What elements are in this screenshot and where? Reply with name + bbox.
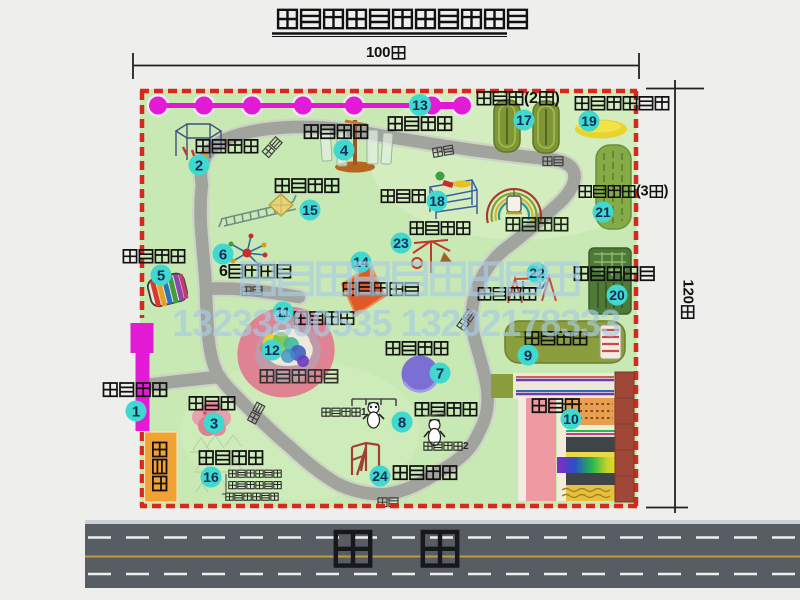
svg-text:13233800535 13202178333: 13233800535 13202178333 xyxy=(172,303,620,345)
svg-text:4: 4 xyxy=(340,142,349,159)
svg-text:15: 15 xyxy=(302,202,318,218)
svg-text:2: 2 xyxy=(195,157,203,174)
svg-text:8: 8 xyxy=(398,414,406,431)
svg-text:(3: (3 xyxy=(636,184,649,200)
svg-text:): ) xyxy=(555,90,560,107)
svg-text:): ) xyxy=(664,184,669,200)
svg-text:13: 13 xyxy=(412,97,428,113)
svg-text:5: 5 xyxy=(157,267,165,284)
svg-text:17: 17 xyxy=(516,112,532,128)
svg-text:1: 1 xyxy=(361,407,367,418)
svg-text:9: 9 xyxy=(524,347,532,364)
svg-text:19: 19 xyxy=(581,113,597,129)
svg-text:3: 3 xyxy=(210,415,218,432)
svg-text:10: 10 xyxy=(563,411,579,427)
svg-text:18: 18 xyxy=(429,193,445,209)
svg-text:20: 20 xyxy=(609,287,625,303)
svg-text:6: 6 xyxy=(219,246,227,263)
svg-text:24: 24 xyxy=(372,468,388,484)
svg-text:16: 16 xyxy=(203,469,219,485)
svg-text:7: 7 xyxy=(436,365,444,382)
svg-text:6: 6 xyxy=(219,263,228,280)
svg-text:2: 2 xyxy=(463,441,469,452)
svg-text:120: 120 xyxy=(680,280,697,304)
svg-text:21: 21 xyxy=(595,204,611,220)
svg-text:23: 23 xyxy=(393,235,409,251)
svg-text:100: 100 xyxy=(366,44,390,61)
svg-text:(2: (2 xyxy=(524,90,538,107)
svg-text:1: 1 xyxy=(132,403,140,420)
